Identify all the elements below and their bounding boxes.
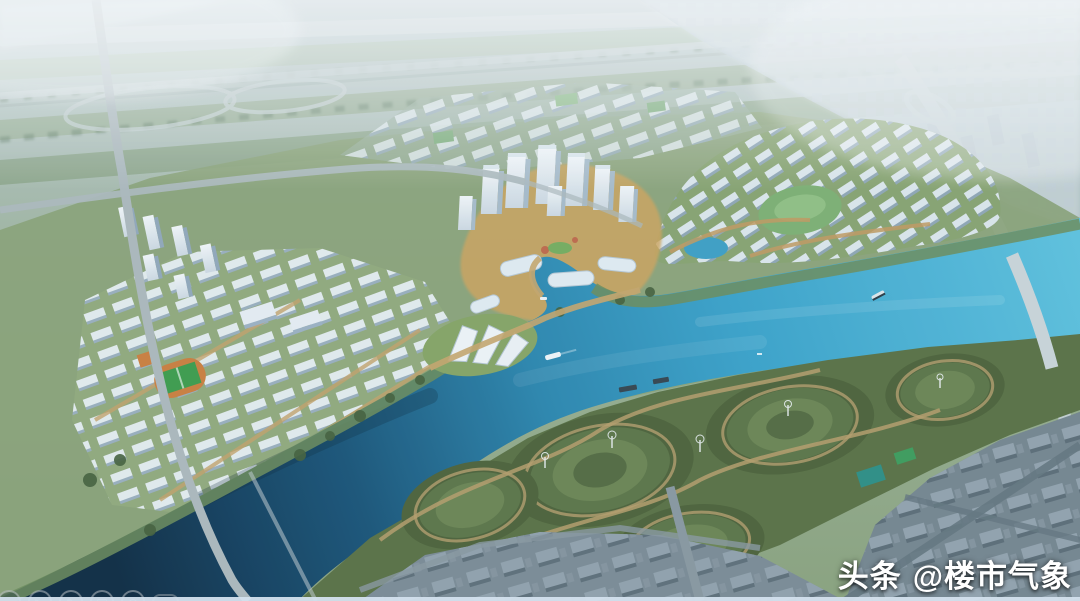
watermark-handle: @楼市气象 <box>913 559 1072 594</box>
aerial-rendering <box>0 0 1080 601</box>
watermark: 头条@楼市气象 <box>838 551 1072 596</box>
watermark-brand: 头条 <box>838 559 902 594</box>
bottom-edge-strip <box>0 597 1080 601</box>
atmosphere-haze <box>0 0 1080 601</box>
screenshot-root: ◅ ▷ ✎ ▣ ◎ 头条@楼市气象 <box>0 0 1080 601</box>
